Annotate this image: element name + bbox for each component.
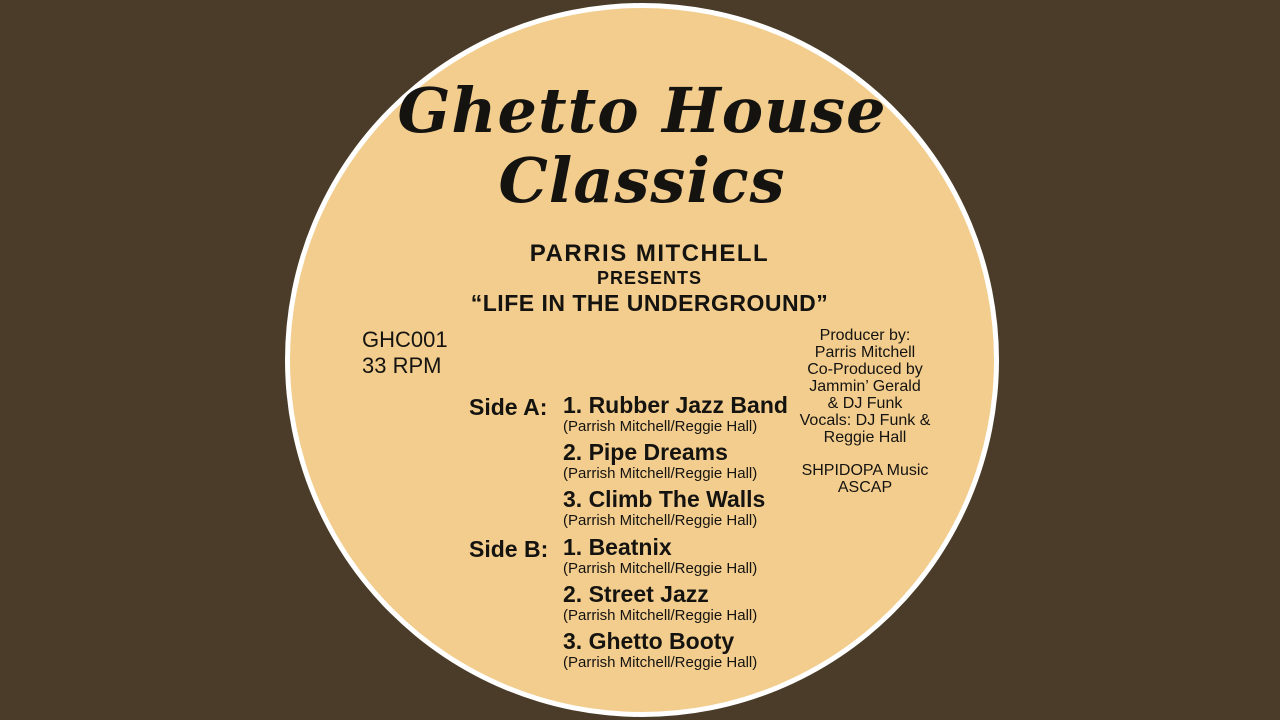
side-b-tracklist: 1. Beatnix (Parrish Mitchell/Reggie Hall…	[563, 538, 883, 679]
track-row: 2. Pipe Dreams (Parrish Mitchell/Reggie …	[563, 443, 883, 481]
track-title: 2. Pipe Dreams	[563, 443, 883, 462]
track-row: 3. Ghetto Booty (Parrish Mitchell/Reggie…	[563, 632, 883, 670]
credit-line: Producer by:	[762, 327, 968, 344]
track-row: 3. Climb The Walls (Parrish Mitchell/Reg…	[563, 490, 883, 528]
credit-line: Co-Produced by	[762, 361, 968, 378]
side-a-label: Side A:	[469, 398, 547, 417]
catalog-number: GHC001	[362, 327, 448, 353]
track-credit: (Parrish Mitchell/Reggie Hall)	[563, 467, 883, 481]
side-b-label: Side B:	[469, 540, 548, 559]
track-title: 2. Street Jazz	[563, 585, 883, 604]
album-title: “LIFE IN THE UNDERGROUND”	[297, 290, 1002, 316]
label-title: Ghetto House Classics	[292, 76, 992, 216]
track-credit: (Parrish Mitchell/Reggie Hall)	[563, 656, 883, 670]
artist-name: PARRIS MITCHELL	[297, 240, 1002, 267]
artist-block: PARRIS MITCHELL PRESENTS “LIFE IN THE UN…	[297, 240, 1002, 316]
track-credit: (Parrish Mitchell/Reggie Hall)	[563, 420, 883, 434]
track-title: 3. Climb The Walls	[563, 490, 883, 509]
presents-text: PRESENTS	[297, 267, 1002, 290]
record-label-thumbnail: Ghetto House Classics PARRIS MITCHELL PR…	[0, 0, 1280, 720]
track-row: 1. Beatnix (Parrish Mitchell/Reggie Hall…	[563, 538, 883, 576]
credit-line: Parris Mitchell	[762, 344, 968, 361]
label-title-line2: Classics	[292, 146, 992, 216]
speed-rpm: 33 RPM	[362, 353, 448, 379]
track-credit: (Parrish Mitchell/Reggie Hall)	[563, 562, 883, 576]
track-row: 1. Rubber Jazz Band (Parrish Mitchell/Re…	[563, 396, 883, 434]
label-title-line1: Ghetto House	[292, 76, 992, 146]
track-title: 3. Ghetto Booty	[563, 632, 883, 651]
track-credit: (Parrish Mitchell/Reggie Hall)	[563, 514, 883, 528]
catalog-block: GHC001 33 RPM	[362, 327, 448, 379]
track-row: 2. Street Jazz (Parrish Mitchell/Reggie …	[563, 585, 883, 623]
track-credit: (Parrish Mitchell/Reggie Hall)	[563, 609, 883, 623]
credit-line: Jammin’ Gerald	[762, 378, 968, 395]
track-title: 1. Rubber Jazz Band	[563, 396, 883, 415]
track-title: 1. Beatnix	[563, 538, 883, 557]
side-a-tracklist: 1. Rubber Jazz Band (Parrish Mitchell/Re…	[563, 396, 883, 537]
